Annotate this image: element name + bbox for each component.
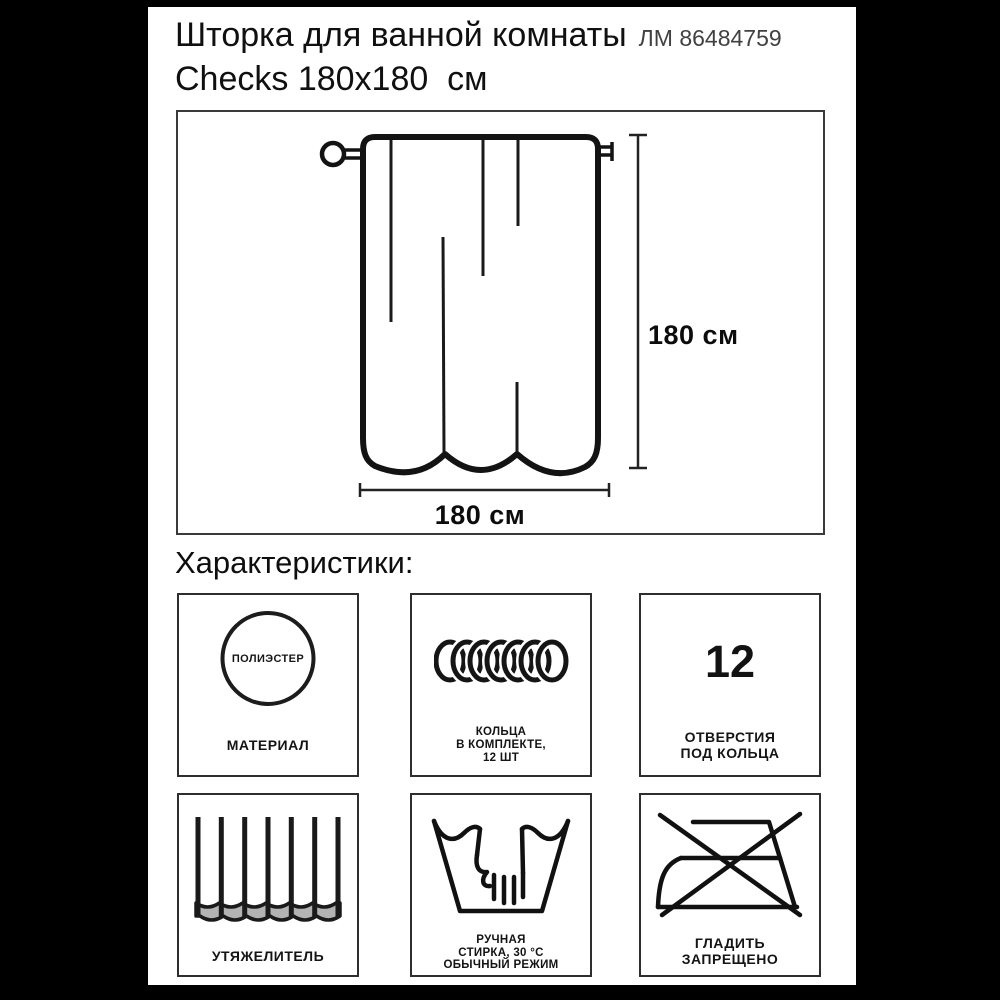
polyester-circle-icon: ПОЛИЭСТЕР (221, 611, 316, 706)
feature-label-line: РУЧНАЯ (412, 934, 590, 947)
ring-holes-count: 12 (641, 639, 819, 684)
feature-label-line: ОБЫЧНЫЙ РЕЖИМ (412, 959, 590, 972)
feature-label-line: В КОМПЛЕКТЕ, (412, 739, 590, 752)
feature-label-line: ГЛАДИТЬ (641, 935, 819, 951)
curtain-diagram-box: 180 см 180 см (176, 110, 825, 535)
feature-label-line: КОЛЬЦА (412, 726, 590, 739)
height-dimension-line (629, 135, 647, 468)
feature-rings-included: КОЛЬЦА В КОМПЛЕКТЕ, 12 ШТ (410, 593, 592, 777)
product-title: Шторка для ванной комнаты (175, 16, 627, 54)
feature-label-line: ЗАПРЕЩЕНО (641, 951, 819, 967)
product-subtitle: Checks 180x180 см (175, 59, 782, 100)
hand-wash-icon (426, 811, 576, 926)
material-value: ПОЛИЭСТЕР (232, 653, 304, 665)
title-block: Шторка для ванной комнатыЛМ 86484759 Che… (175, 15, 782, 100)
width-dimension-line (360, 483, 609, 497)
feature-weighted-hem: УТЯЖЕЛИТЕЛЬ (177, 793, 359, 977)
characteristics-heading: Характеристики: (175, 545, 413, 581)
width-dimension-label: 180 см (380, 500, 580, 531)
feature-label: УТЯЖЕЛИТЕЛЬ (179, 948, 357, 964)
feature-label-line: ПОД КОЛЬЦА (641, 745, 819, 761)
curtain-ring-icon (322, 143, 344, 165)
weighted-hem-icon (193, 813, 343, 931)
product-infographic-card: Шторка для ванной комнатыЛМ 86484759 Che… (148, 7, 856, 985)
curtain-rings-icon (434, 639, 569, 683)
product-sku: ЛМ 86484759 (639, 25, 782, 51)
title-line: Шторка для ванной комнатыЛМ 86484759 (175, 15, 782, 59)
feature-material: ПОЛИЭСТЕР МАТЕРИАЛ (177, 593, 359, 777)
feature-label: МАТЕРИАЛ (179, 737, 357, 753)
feature-hand-wash: РУЧНАЯ СТИРКА, 30 °C ОБЫЧНЫЙ РЕЖИМ (410, 793, 592, 977)
no-iron-icon (655, 810, 805, 920)
height-dimension-label: 180 см (648, 320, 739, 351)
feature-no-iron: ГЛАДИТЬ ЗАПРЕЩЕНО (639, 793, 821, 977)
feature-label-line: СТИРКА, 30 °C (412, 947, 590, 960)
feature-ring-holes: 12 ОТВЕРСТИЯ ПОД КОЛЬЦА (639, 593, 821, 777)
feature-label-line: 12 ШТ (412, 752, 590, 765)
feature-label-line: ОТВЕРСТИЯ (641, 729, 819, 745)
